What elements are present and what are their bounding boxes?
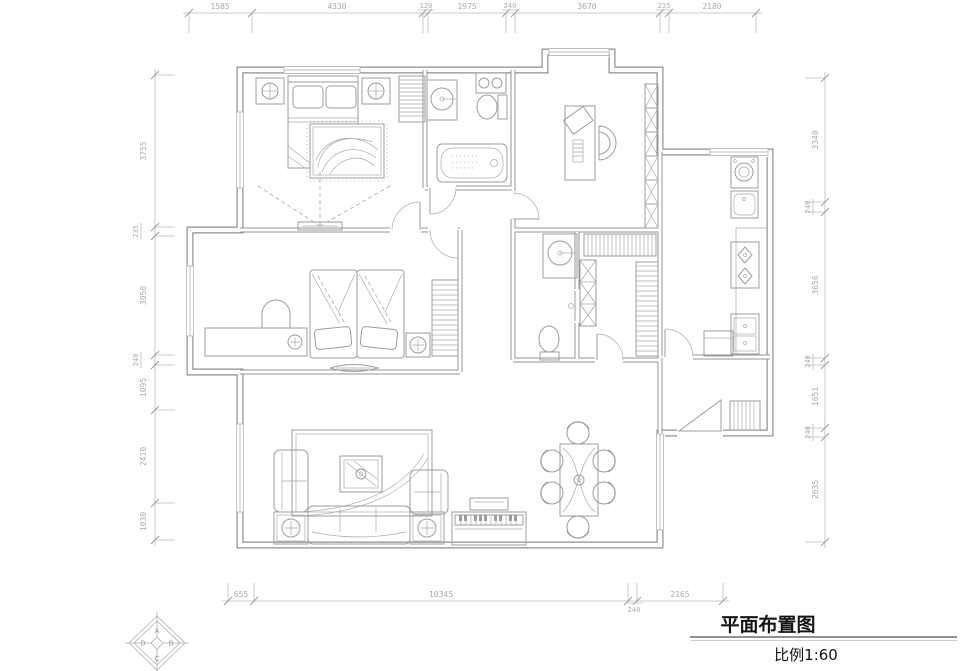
master-bathroom-fixtures xyxy=(427,73,507,182)
nightstand-left xyxy=(256,78,284,104)
bookshelf xyxy=(645,84,658,228)
window-master-top xyxy=(284,65,360,75)
washbasin-mid xyxy=(543,234,577,278)
dim-bottom-4: 2165 xyxy=(670,590,689,599)
dim-left-2: 235 xyxy=(132,225,140,238)
dining-furniture xyxy=(541,422,615,538)
twin-bed-2 xyxy=(357,270,404,358)
title-block: 平面布置图 比例1:60 xyxy=(690,613,957,664)
dimension-chain-bottom: 655 10345 240 2165 xyxy=(222,583,729,614)
dining-chairs xyxy=(541,422,615,538)
floor-plan-sheet: 1585 4330 120 1975 240 3670 235 2180 375… xyxy=(0,0,960,671)
door-openings xyxy=(390,183,723,438)
dim-right-2: 240 xyxy=(804,201,812,214)
window-master-left xyxy=(235,112,245,188)
dim-top-7: 235 xyxy=(658,2,671,10)
double-sink xyxy=(476,73,506,93)
door-entry xyxy=(679,400,721,431)
dim-top-6: 3670 xyxy=(577,2,596,11)
dim-bottom-1: 655 xyxy=(234,590,249,599)
dim-top-4: 1975 xyxy=(457,2,476,11)
kitchen-small-sink xyxy=(731,191,758,218)
master-rug xyxy=(307,121,387,181)
elevation-marker-d: D xyxy=(140,640,145,648)
washing-machine xyxy=(731,157,758,188)
master-wardrobe xyxy=(399,76,425,122)
window-kitchen-top xyxy=(710,147,768,157)
elevation-marker-a: A xyxy=(155,627,160,635)
dim-left-7: 1030 xyxy=(139,512,148,531)
window-dining-right xyxy=(655,434,665,530)
dining-table xyxy=(560,444,598,516)
elevation-marker: A B C D xyxy=(125,612,189,671)
window-bay-study xyxy=(549,47,609,57)
nightstand-right xyxy=(362,78,390,104)
dimension-chain-right: 3340 240 3656 240 1651 240 2635 xyxy=(804,72,829,548)
study-furniture xyxy=(564,84,658,228)
dimension-chain-top: 1585 4330 120 1975 240 3670 235 2180 xyxy=(183,2,762,33)
dimension-chain-left: 3755 235 3050 240 1095 2410 1030 xyxy=(132,69,175,546)
kitchen-fixtures xyxy=(704,157,768,356)
washbasin-counter xyxy=(427,80,457,120)
walls xyxy=(190,52,770,545)
dim-right-4: 240 xyxy=(804,355,812,368)
study-chair xyxy=(599,126,616,160)
living-room-furniture xyxy=(274,430,526,545)
bedroom2-desk xyxy=(205,300,307,356)
armchair-right xyxy=(410,470,448,514)
bedroom2-furniture xyxy=(205,270,458,372)
master-bedroom-furniture xyxy=(256,76,425,230)
dim-left-4: 240 xyxy=(132,354,140,367)
drawing-scale: 比例1:60 xyxy=(774,646,838,664)
dim-bottom-3: 240 xyxy=(628,606,641,614)
closet-wardrobe xyxy=(636,262,658,356)
closet-cabinet-top xyxy=(584,234,656,256)
windows xyxy=(185,47,768,530)
dim-top-3: 120 xyxy=(420,2,433,10)
window-bedroom2-left xyxy=(185,266,195,336)
twin-bed-1 xyxy=(310,270,357,358)
dim-left-5: 1095 xyxy=(139,378,148,397)
coffee-table xyxy=(340,456,382,492)
dim-left-6: 2410 xyxy=(139,447,148,466)
fridge xyxy=(704,331,733,356)
stove xyxy=(731,242,759,288)
dim-right-7: 2635 xyxy=(811,480,820,499)
doors xyxy=(392,188,721,431)
toilet-mid xyxy=(539,326,559,360)
piano xyxy=(452,498,526,545)
armchair-left xyxy=(274,450,308,512)
shoe-cabinet xyxy=(730,401,760,430)
dim-left-1: 3755 xyxy=(139,141,148,160)
window-living-left xyxy=(235,424,245,512)
side-table-left xyxy=(274,512,308,544)
middle-bathroom-fixtures xyxy=(539,234,577,360)
bedroom2-wardrobe xyxy=(432,280,458,356)
dim-top-8: 2180 xyxy=(702,2,721,11)
foyer-furniture xyxy=(730,401,760,430)
dim-top-1: 1585 xyxy=(210,2,229,11)
dim-right-1: 3340 xyxy=(811,130,820,149)
dim-top-5: 240 xyxy=(504,2,517,10)
nightstand-bedroom2 xyxy=(406,333,430,357)
study-desk xyxy=(564,106,595,180)
dim-top-2: 4330 xyxy=(327,2,346,11)
bathtub xyxy=(437,144,507,182)
dim-left-3: 3050 xyxy=(139,286,148,305)
side-table-right xyxy=(410,512,444,544)
kitchen-double-sink xyxy=(731,314,759,354)
dim-right-5: 1651 xyxy=(811,387,820,406)
elevation-marker-b: B xyxy=(169,640,174,648)
dim-right-6: 240 xyxy=(804,426,812,439)
closet-furniture xyxy=(580,234,658,356)
toilet-master xyxy=(477,95,507,119)
dim-right-3: 3656 xyxy=(811,275,820,294)
dim-bottom-2: 10345 xyxy=(429,590,453,599)
closet-shelves xyxy=(580,260,596,326)
drawing-title: 平面布置图 xyxy=(720,613,815,636)
elevation-marker-c: C xyxy=(155,655,160,663)
floor-plan-canvas: 1585 4330 120 1975 240 3670 235 2180 375… xyxy=(0,0,960,671)
